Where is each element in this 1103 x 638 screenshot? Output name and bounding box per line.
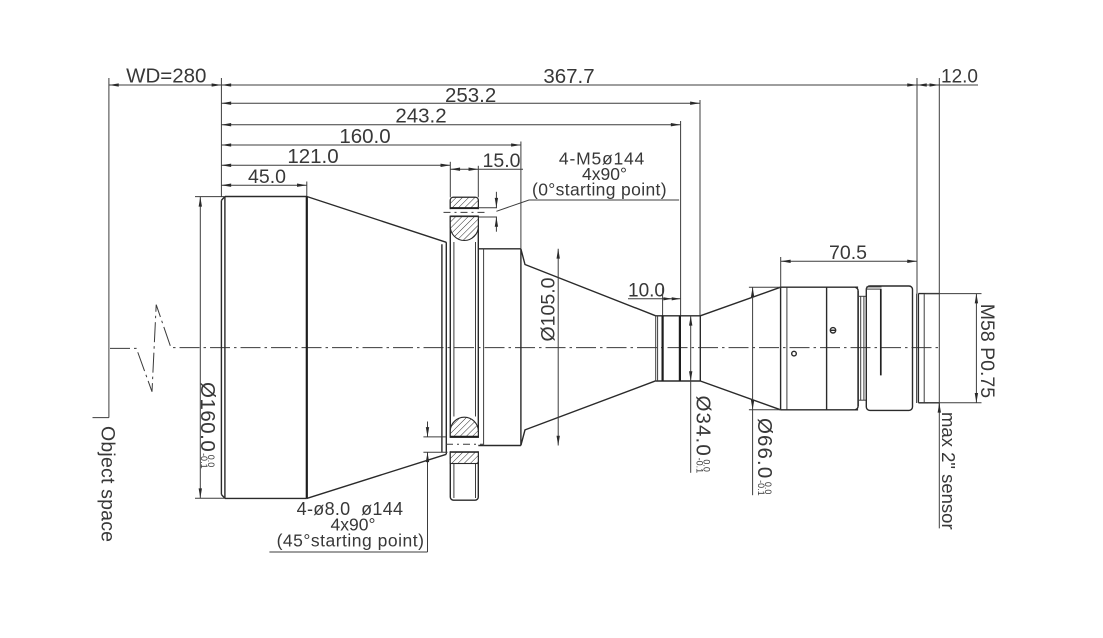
svg-text:Ø34.00.0-0.1: Ø34.00.0-0.1 [692, 396, 715, 474]
svg-text:70.5: 70.5 [829, 242, 867, 264]
svg-text:(0°starting point): (0°starting point) [532, 180, 667, 200]
svg-text:15.0: 15.0 [483, 150, 521, 172]
svg-text:Ø105.0: Ø105.0 [538, 277, 560, 341]
svg-text:243.2: 243.2 [395, 105, 446, 128]
svg-text:160.0: 160.0 [339, 125, 390, 148]
svg-text:(45°starting point): (45°starting point) [277, 531, 425, 551]
svg-text:10.0: 10.0 [628, 281, 665, 302]
svg-text:WD=280: WD=280 [126, 65, 206, 88]
svg-text:Ø160.00.0-0.1: Ø160.00.0-0.1 [196, 382, 219, 469]
svg-text:121.0: 121.0 [287, 145, 338, 168]
svg-text:Ø66.00.0-0.1: Ø66.00.0-0.1 [753, 418, 776, 496]
svg-text:12.0: 12.0 [941, 66, 978, 87]
svg-text:45.0: 45.0 [248, 166, 286, 188]
svg-text:367.7: 367.7 [543, 65, 594, 88]
svg-text:253.2: 253.2 [445, 84, 496, 107]
svg-text:M58 P0.75: M58 P0.75 [976, 304, 998, 398]
svg-text:Object space: Object space [97, 426, 119, 542]
svg-text:max 2" sensor: max 2" sensor [938, 412, 959, 530]
